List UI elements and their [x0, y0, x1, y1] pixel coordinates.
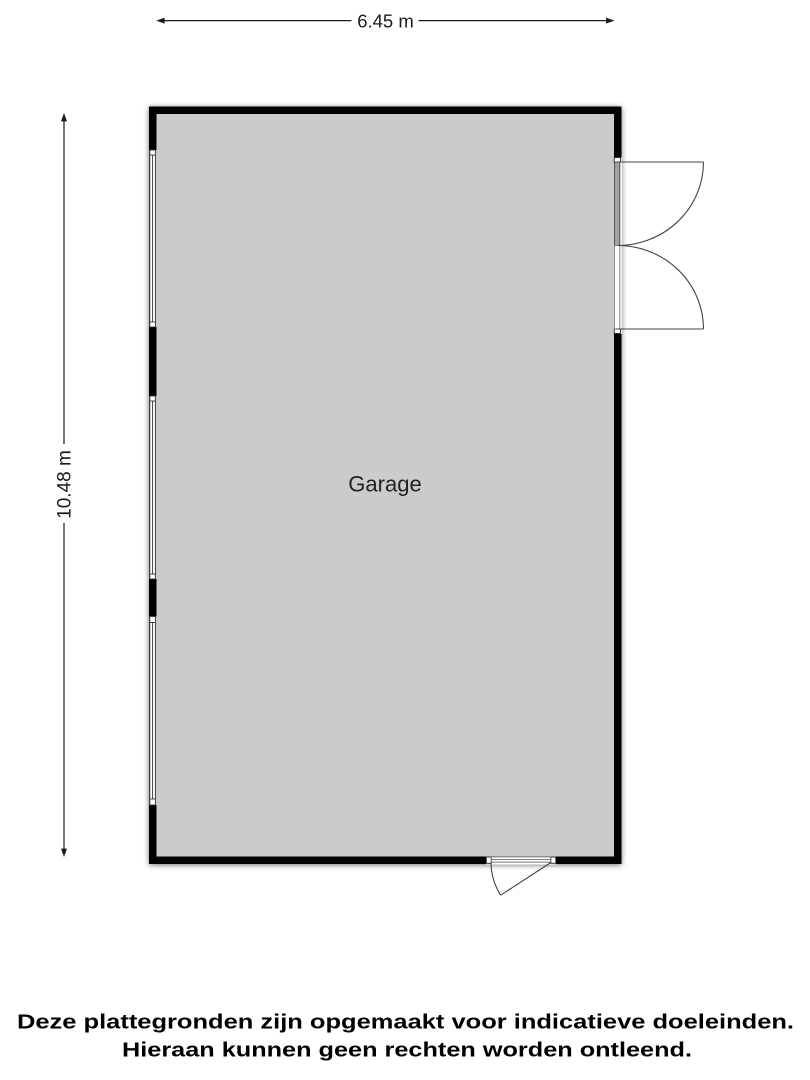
svg-text:Hieraan kunnen geen rechten wo: Hieraan kunnen geen rechten worden ontle… — [122, 1040, 692, 1062]
svg-text:Garage: Garage — [348, 472, 421, 497]
svg-text:10.48 m: 10.48 m — [55, 450, 76, 519]
svg-text:6.45 m: 6.45 m — [357, 11, 414, 32]
svg-text:Deze plattegronden zijn opgema: Deze plattegronden zijn opgemaakt voor i… — [17, 1012, 794, 1034]
